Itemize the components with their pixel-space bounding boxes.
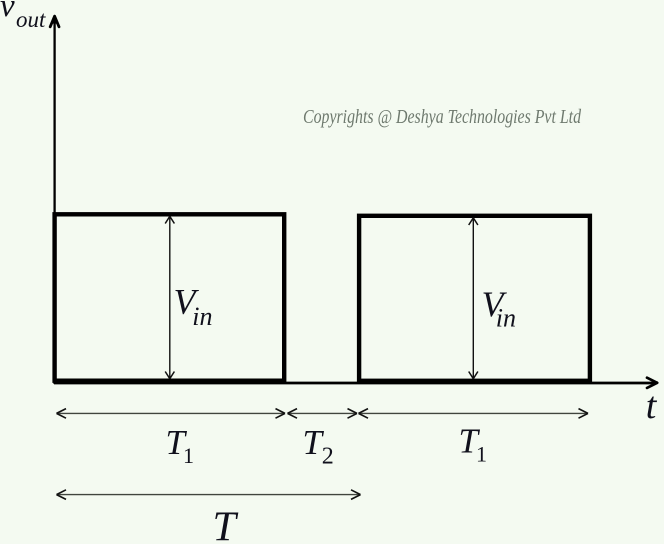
svg-text:t: t [646,385,658,427]
svg-text:Copyrights @ Deshya Technologi: Copyrights @ Deshya Technologies Pvt Ltd [303,106,582,128]
svg-text:T: T [213,505,239,544]
